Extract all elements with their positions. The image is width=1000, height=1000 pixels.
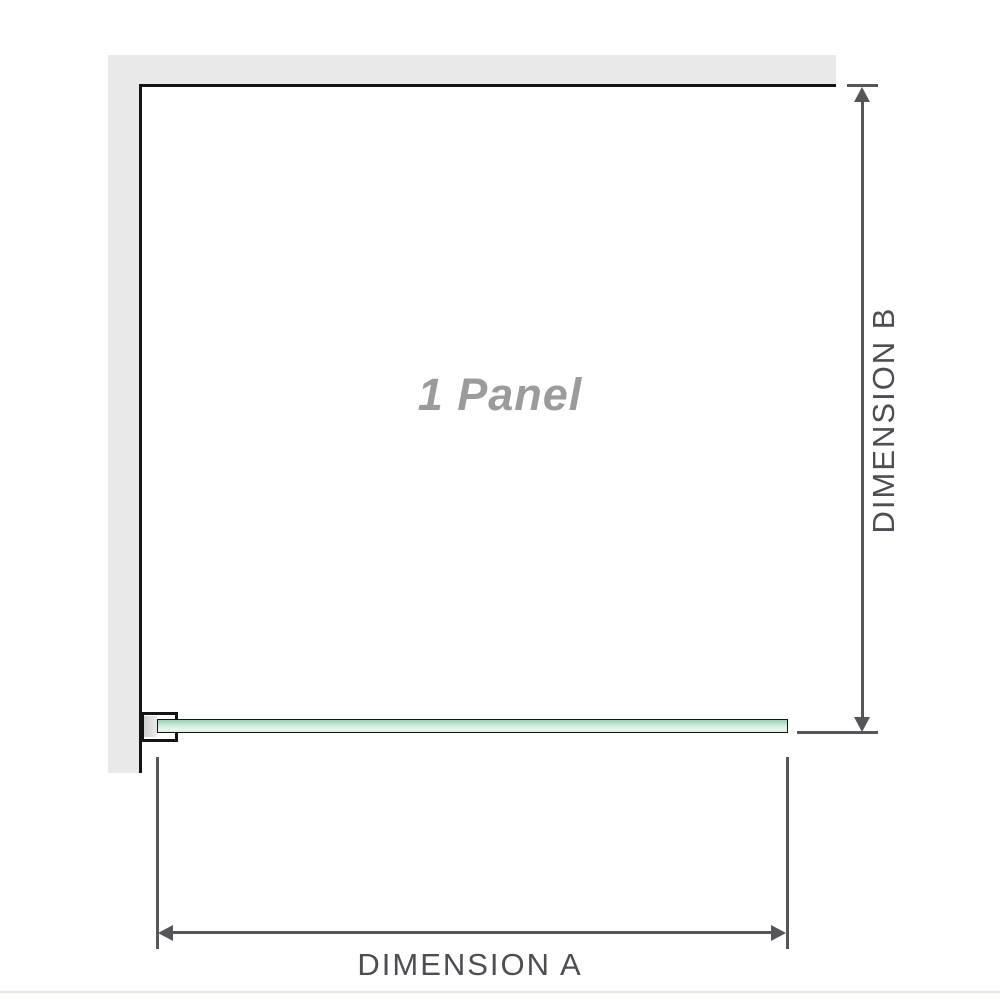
glass-panel — [157, 719, 788, 733]
dimension-a-extension-left — [156, 757, 159, 949]
dimension-a-line — [166, 931, 780, 934]
arrow-right-icon — [771, 925, 786, 941]
wall-left — [108, 55, 139, 773]
wall-inner-edge-top — [139, 84, 836, 87]
panel-count-label: 1 Panel — [418, 369, 583, 421]
bracket-shade — [144, 716, 157, 737]
arrow-down-icon — [854, 717, 870, 732]
wall-inner-edge-left — [139, 84, 142, 773]
bottom-baseline — [0, 991, 1000, 993]
dimension-b-label: DIMENSION B — [866, 307, 902, 534]
wall-top — [108, 55, 836, 84]
dimension-b-line — [861, 95, 864, 725]
dimension-a-label: DIMENSION A — [357, 947, 582, 983]
shower-screen-diagram: 1 Panel DIMENSION B DIMENSION A — [0, 0, 1000, 1000]
arrow-left-icon — [158, 925, 173, 941]
dimension-a-extension-right — [786, 757, 789, 949]
dimension-b-tick-bottom — [797, 731, 878, 734]
arrow-up-icon — [854, 87, 870, 102]
